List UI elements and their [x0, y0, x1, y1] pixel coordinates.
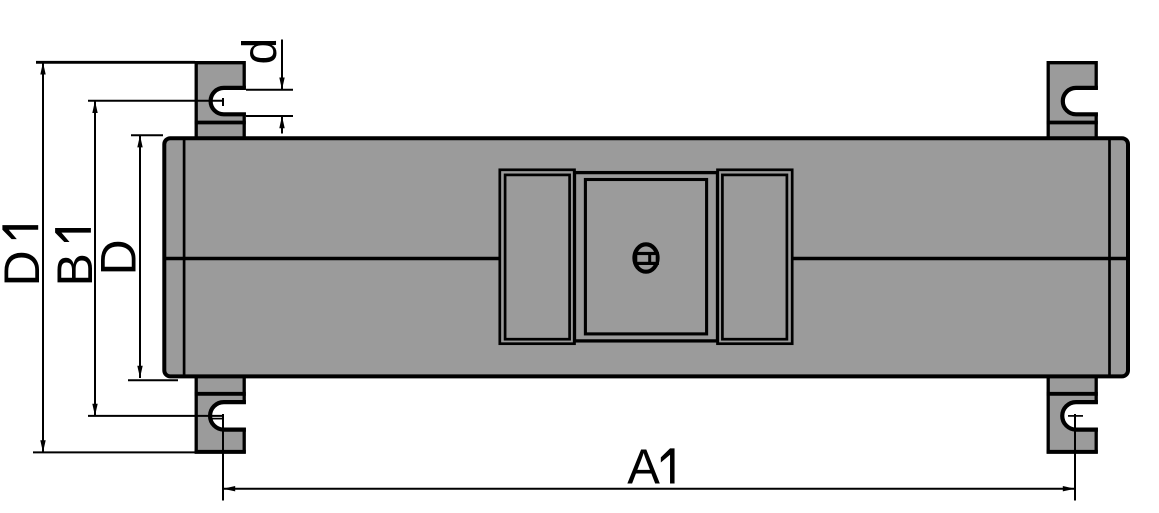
svg-text:D: D [0, 250, 50, 286]
svg-text:A: A [627, 441, 660, 495]
svg-text:d: d [234, 38, 287, 65]
svg-text:D: D [91, 239, 147, 275]
